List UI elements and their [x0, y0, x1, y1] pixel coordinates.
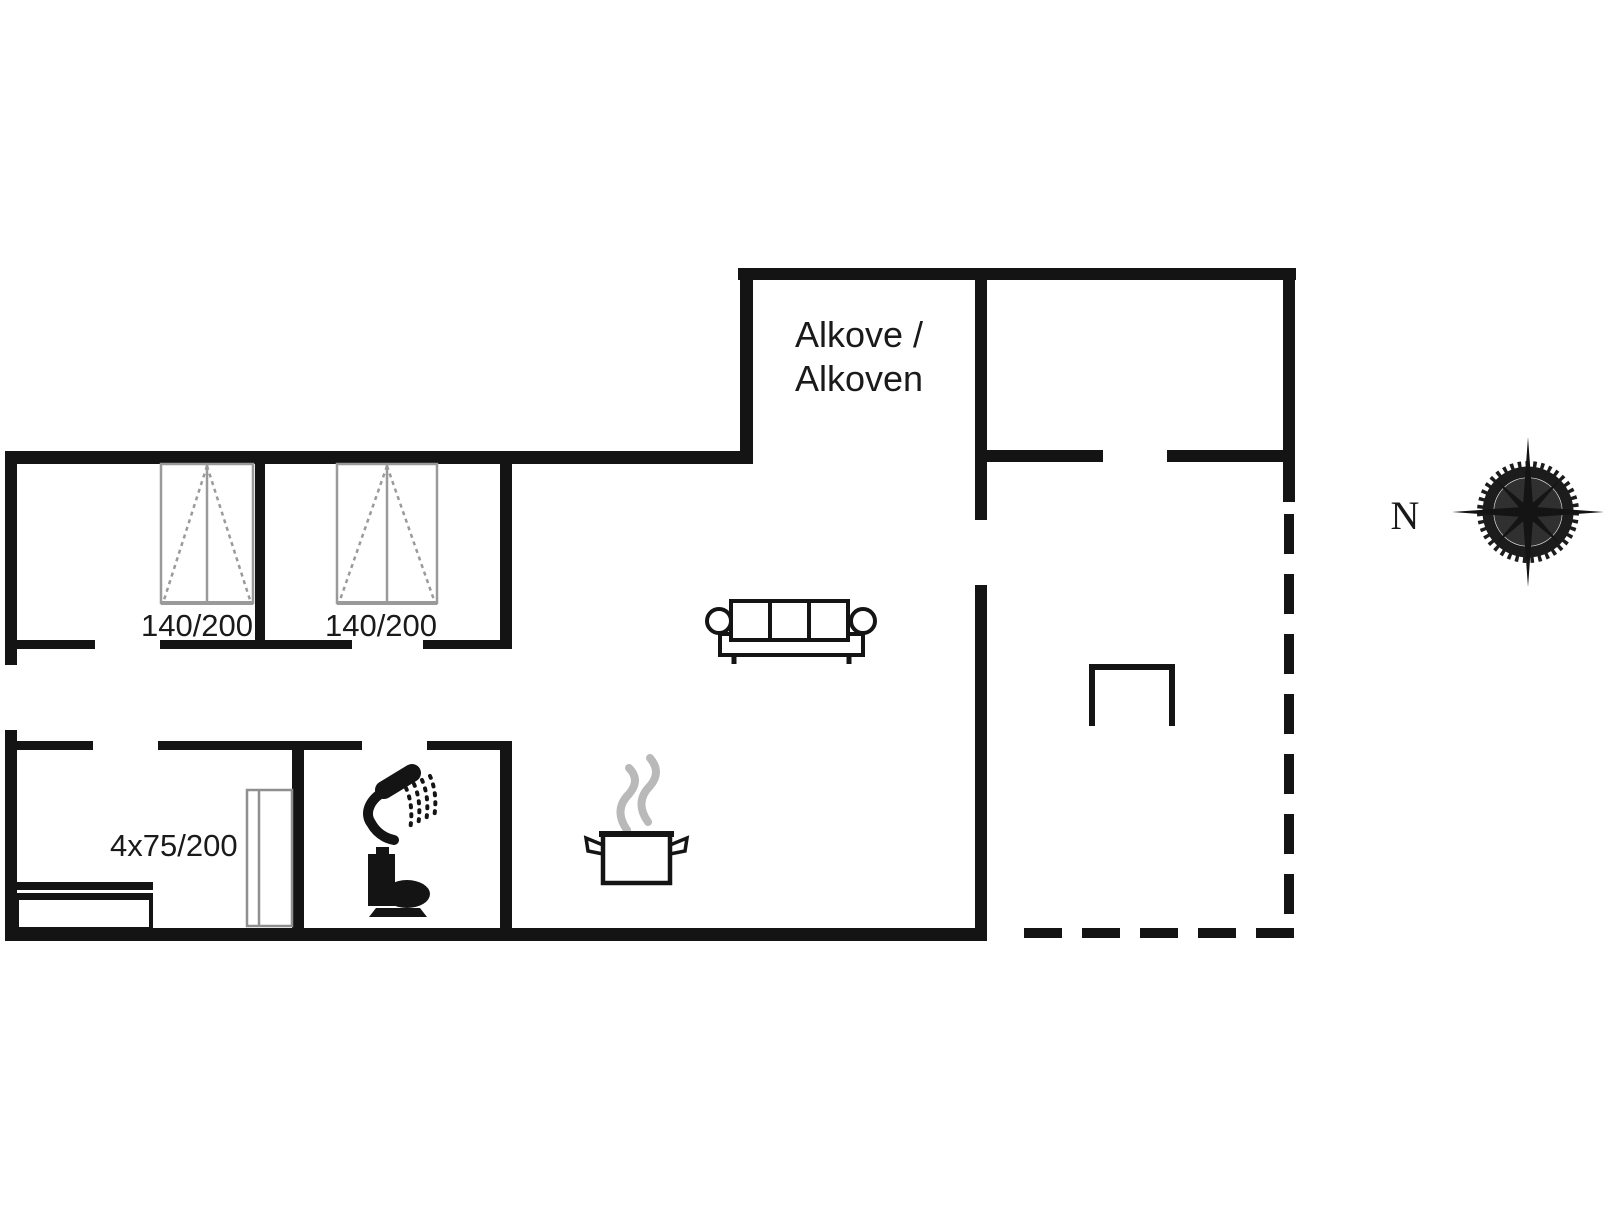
wall-upper-top	[738, 268, 1296, 280]
wardrobe-icon	[247, 790, 292, 926]
floor-plan-canvas: Alkove / Alkoven 140/200 140/200 4x75/20…	[0, 0, 1606, 1205]
wall-rightroom-bottom-b	[1167, 450, 1295, 462]
wall-corridor-top-a	[5, 640, 95, 649]
wall-alcove-left	[740, 268, 753, 464]
alcove-room-label-line1: Alkove /	[795, 314, 923, 355]
bedroom2-bed-size-label: 140/200	[325, 608, 437, 643]
alcove-room-label-line2: Alkoven	[795, 358, 923, 399]
wall-corridor-bottom-a	[5, 741, 93, 750]
compass-cardinal-points	[1452, 437, 1604, 587]
toilet-icon	[368, 847, 430, 917]
wall-rightroom-bottom-a	[975, 450, 1103, 462]
wall-living-terrace	[975, 585, 987, 941]
chair-icon	[1092, 667, 1172, 726]
floor-plan-drawing: Alkove / Alkoven 140/200 140/200 4x75/20…	[0, 0, 1606, 1205]
wall-leftwing-top	[5, 451, 753, 464]
wall-bedroom2-right	[500, 455, 512, 647]
double-bed-icon	[161, 464, 253, 603]
double-bed-icon	[337, 464, 437, 603]
north-label: N	[1391, 493, 1420, 538]
bunk-bed-size-label: 4x75/200	[110, 828, 238, 863]
wall-alcove-divider	[975, 268, 987, 520]
compass-rose-icon	[1452, 437, 1604, 587]
cooking-pot-icon	[586, 834, 687, 883]
wall-bathroom-left	[292, 741, 304, 941]
steam-icon	[620, 758, 656, 830]
wall-bathroom-right	[500, 741, 512, 941]
wall-corridor-bottom-b	[158, 741, 362, 750]
terrace-dashed-boundary	[1008, 514, 1294, 937]
bedroom1-bed-size-label: 140/200	[141, 608, 253, 643]
wall-left-outer-upper	[5, 451, 17, 665]
wall-corridor-bottom-c	[427, 741, 512, 750]
wall-bedroom-divider	[255, 455, 265, 649]
wall-right-outer	[1283, 268, 1295, 502]
sofa-icon	[707, 601, 875, 664]
shower-icon	[368, 773, 435, 840]
bunk-bed-icon	[15, 882, 153, 929]
